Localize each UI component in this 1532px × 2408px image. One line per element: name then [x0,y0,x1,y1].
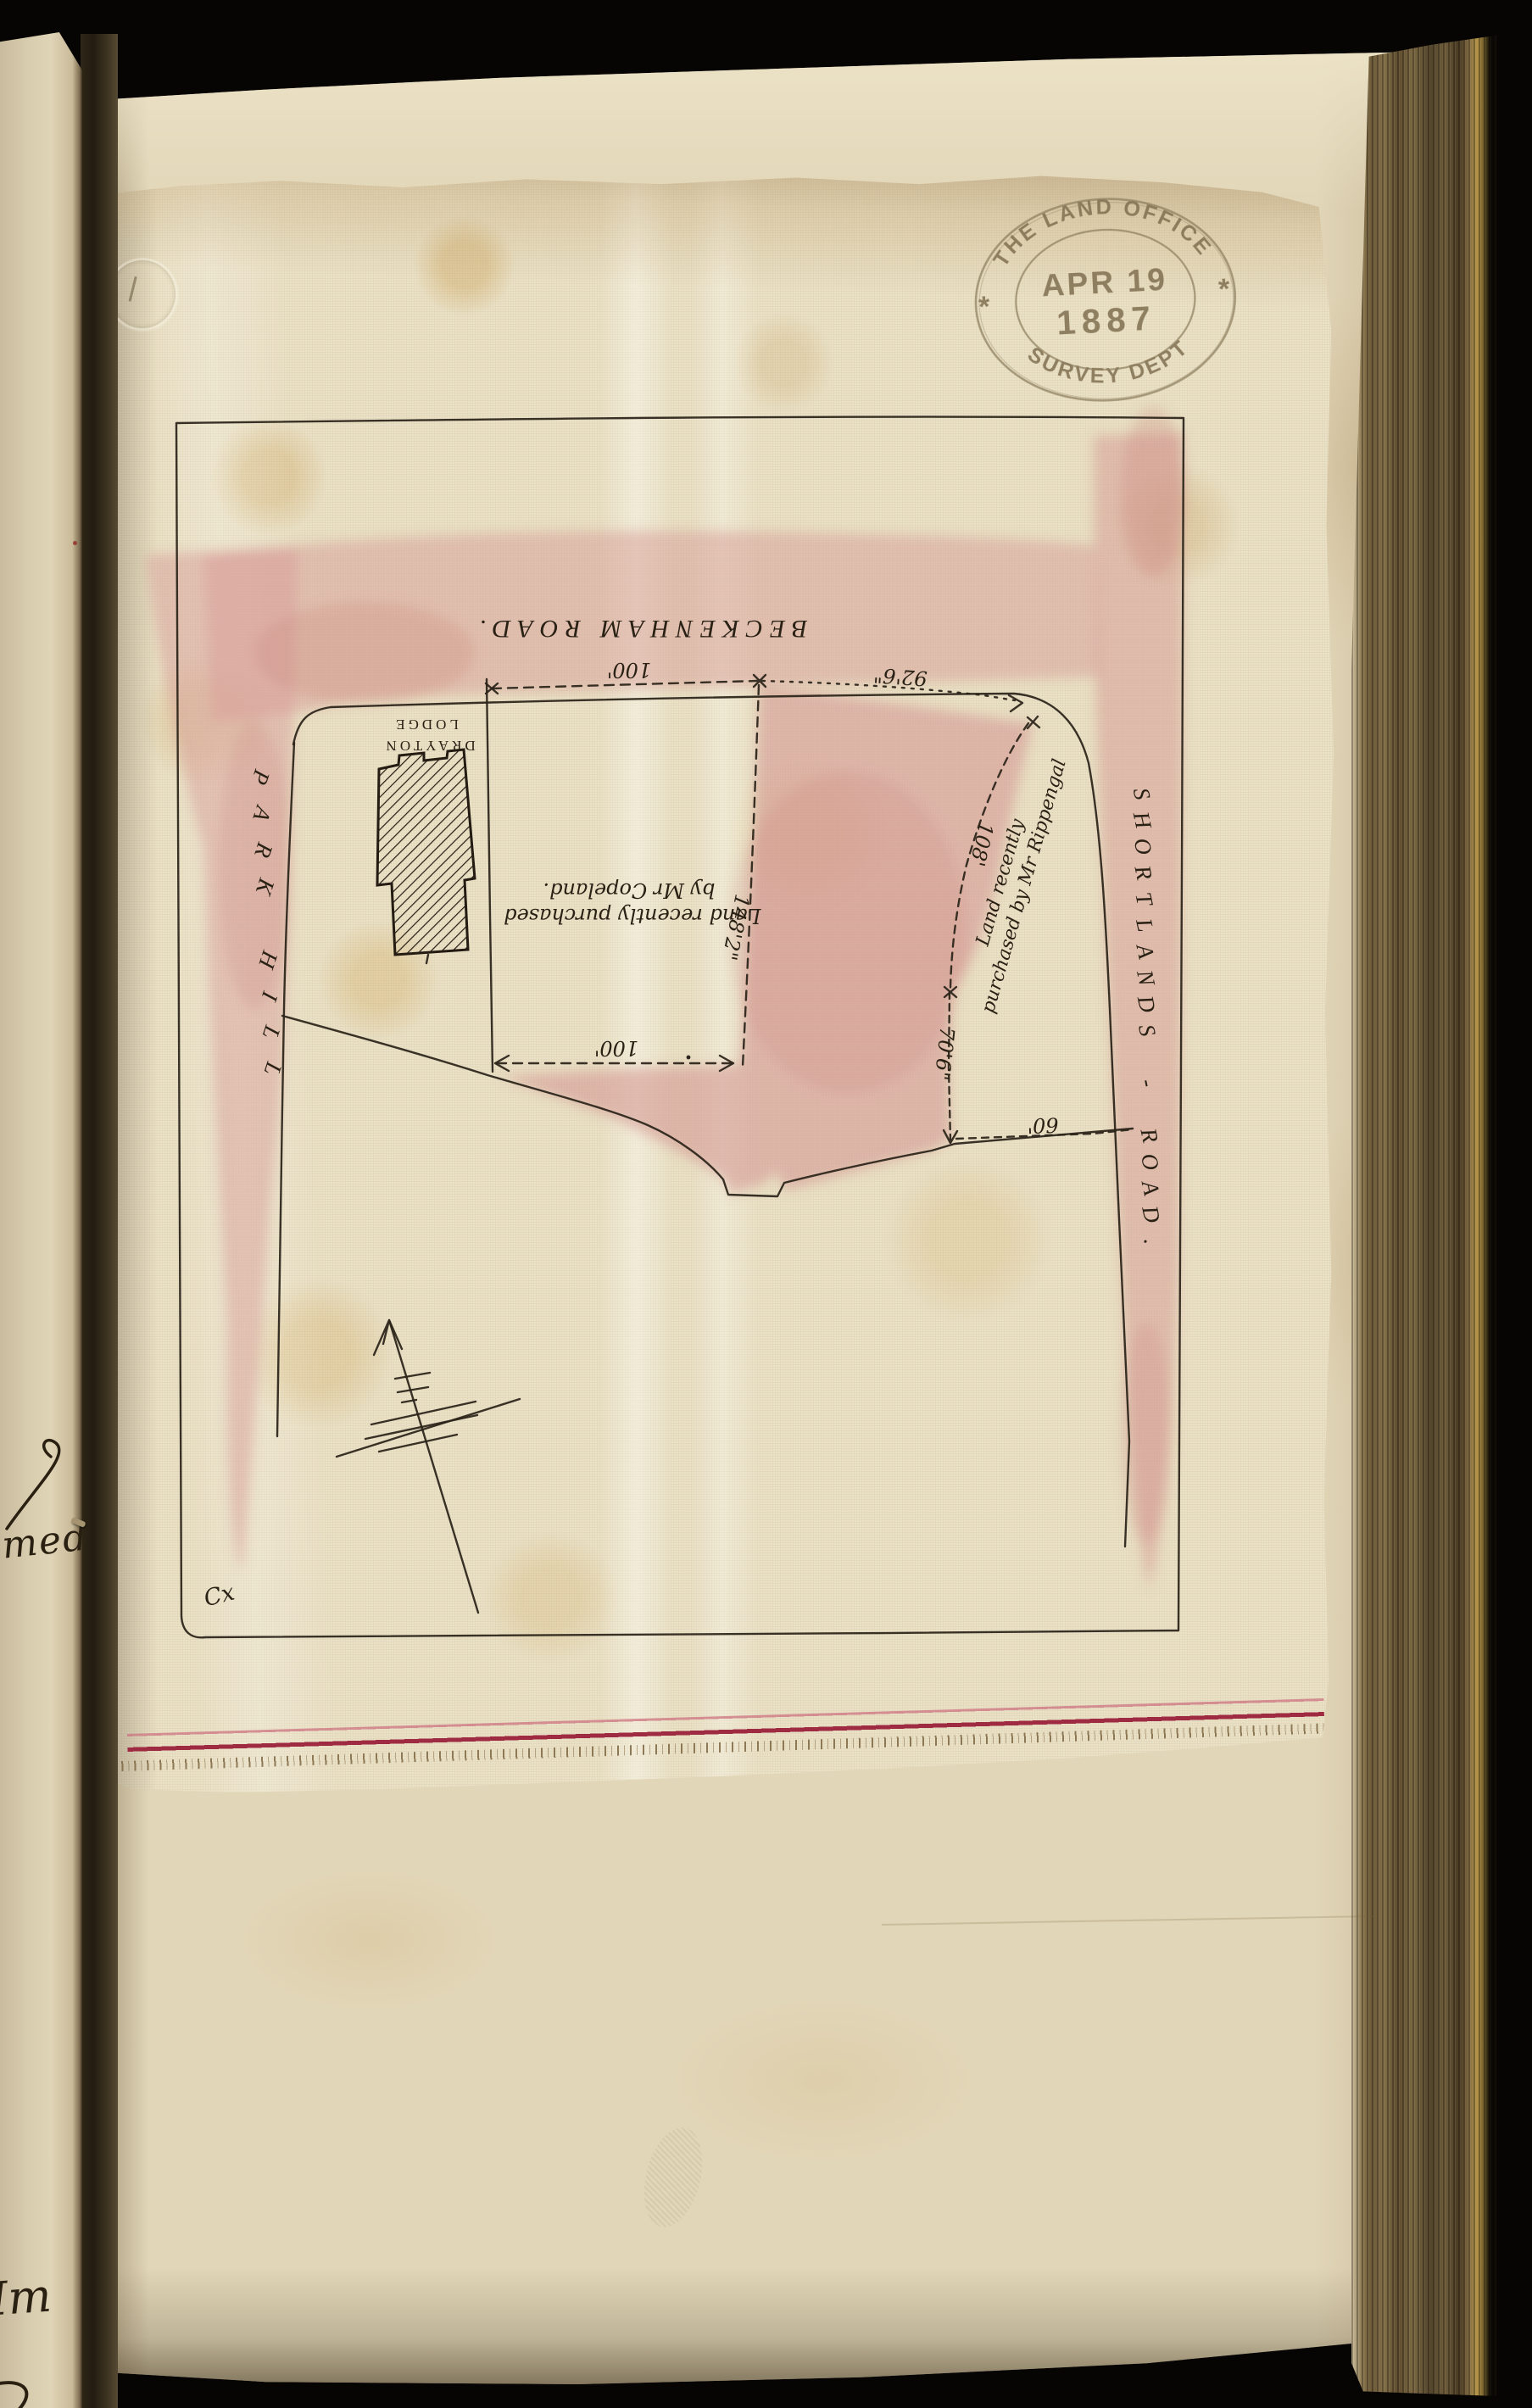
handwriting-fragment-1: amed [0,1515,82,1569]
page-fore-edge-stack [1351,31,1497,2396]
scanned-book-photo: THE LAND OFFICE SURVEY DEPT * * APR 19 1… [0,0,1532,2408]
handwriting-curve [0,2369,82,2408]
stamp-arc-bottom-text: SURVEY DEPT [1022,334,1195,393]
north-compass [337,1320,520,1613]
land-office-stamp: THE LAND OFFICE SURVEY DEPT * * APR 19 1… [959,181,1252,422]
building-label-line1: DRAYTON [383,738,476,754]
building-footprint [377,750,475,963]
binding-gutter [81,34,118,2408]
annotation-copeland-line1: Land recently purchased [504,904,761,928]
stamp-date-line2: 1887 [1056,299,1157,343]
dim-top-right: 92'6" [872,663,928,690]
dim-top-left: 100' [607,658,651,682]
facing-page-edge: amed Im [0,32,82,2408]
red-speck [73,541,77,545]
road-label-beckenham: BECKENHAM ROAD. [473,615,808,643]
survey-plan-drawing: BECKENHAM ROAD. PARKHILL SHORTLANDS-ROAD… [119,382,1357,1692]
pink-road-washes [146,407,1185,1589]
building-label: DRAYTON LODGE [376,716,476,754]
building-label-line2: LODGE [393,716,459,733]
dim-bottom-right: 60' [1027,1112,1059,1137]
dim-bottom: 100' [594,1036,638,1060]
stamp-date-line1: APR 19 [1041,261,1168,304]
stamp-star-right: * [1217,273,1231,306]
handwriting-fragment-2: Im [0,2269,53,2327]
stamp-star-left: * [978,291,991,324]
annotation-copeland: Land recently purchased by Mr Copeland. [497,878,761,928]
annotation-copeland-line2: by Mr Copeland. [543,878,715,902]
corner-scribe-mark: Cx [201,1580,237,1613]
